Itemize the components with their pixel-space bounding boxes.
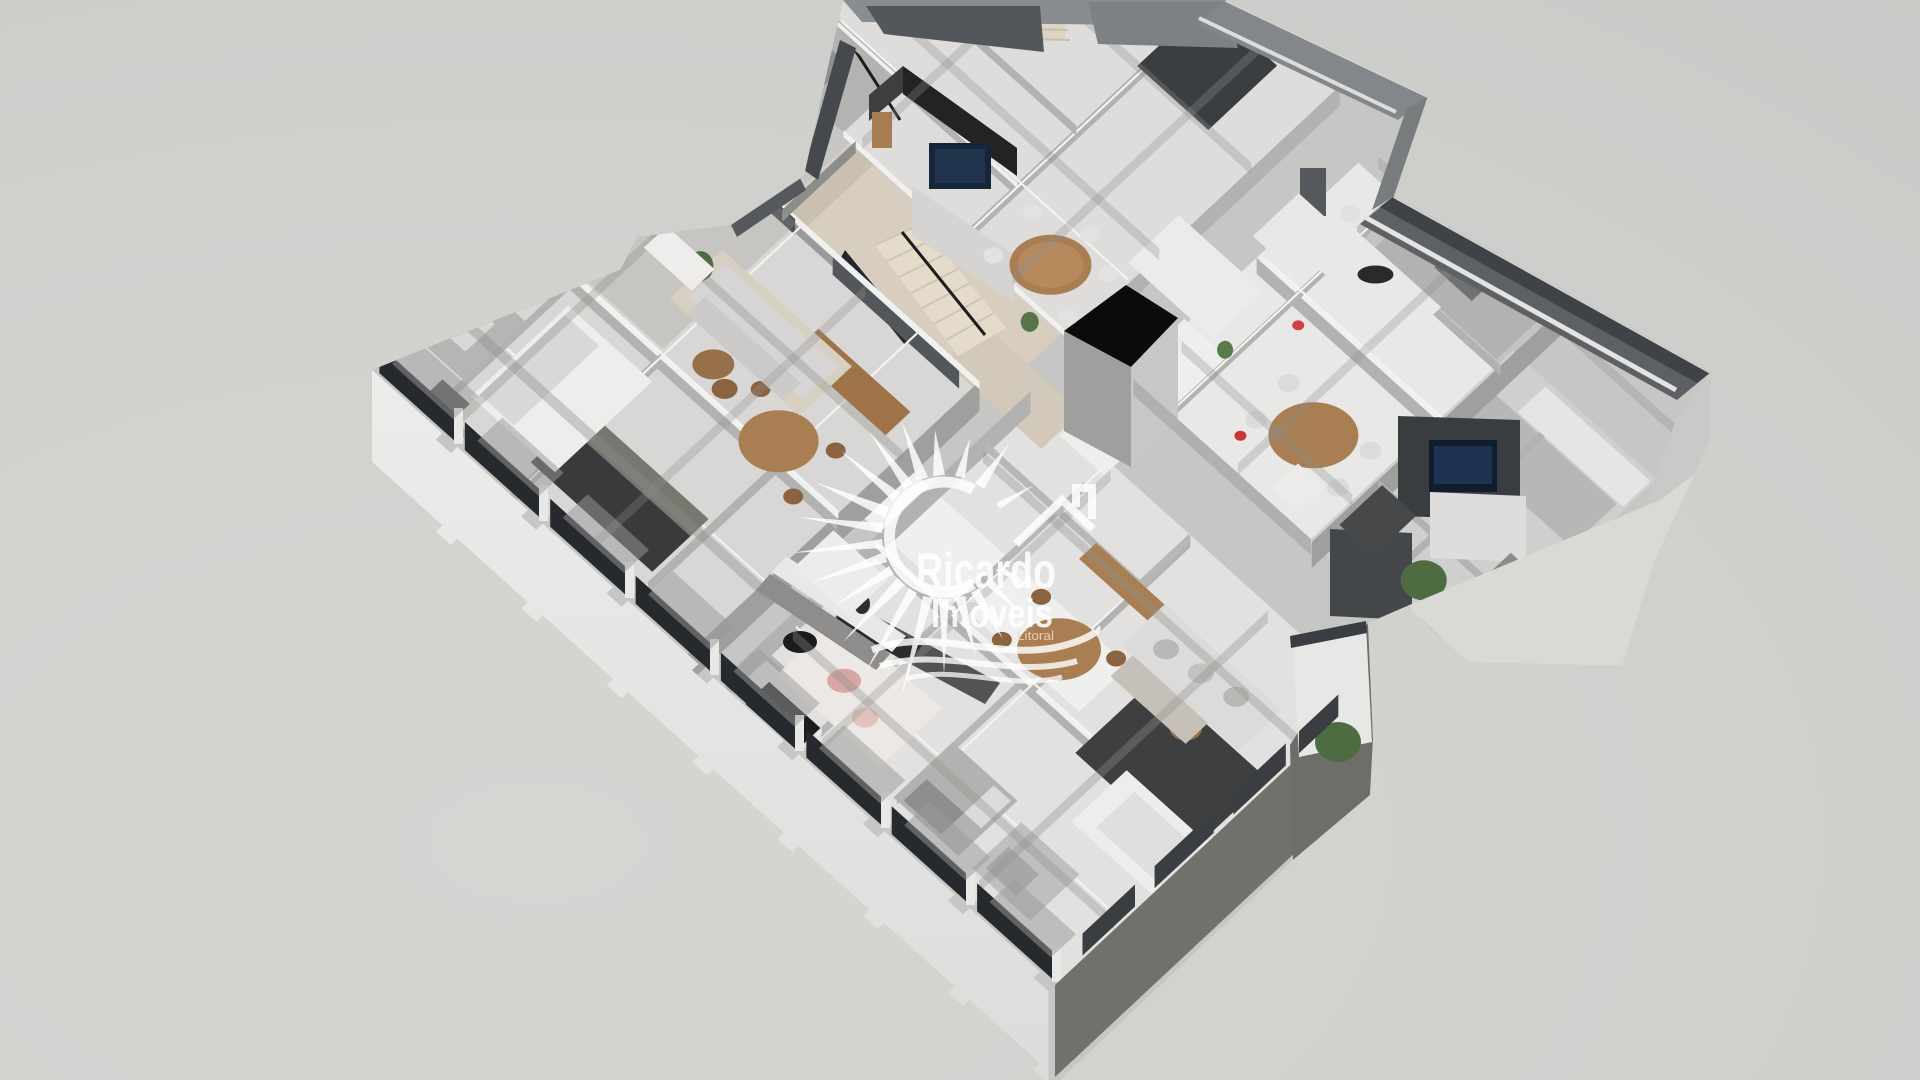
svg-text:Ricardo: Ricardo [916, 543, 1056, 599]
svg-text:Litoral: Litoral [1017, 628, 1054, 643]
